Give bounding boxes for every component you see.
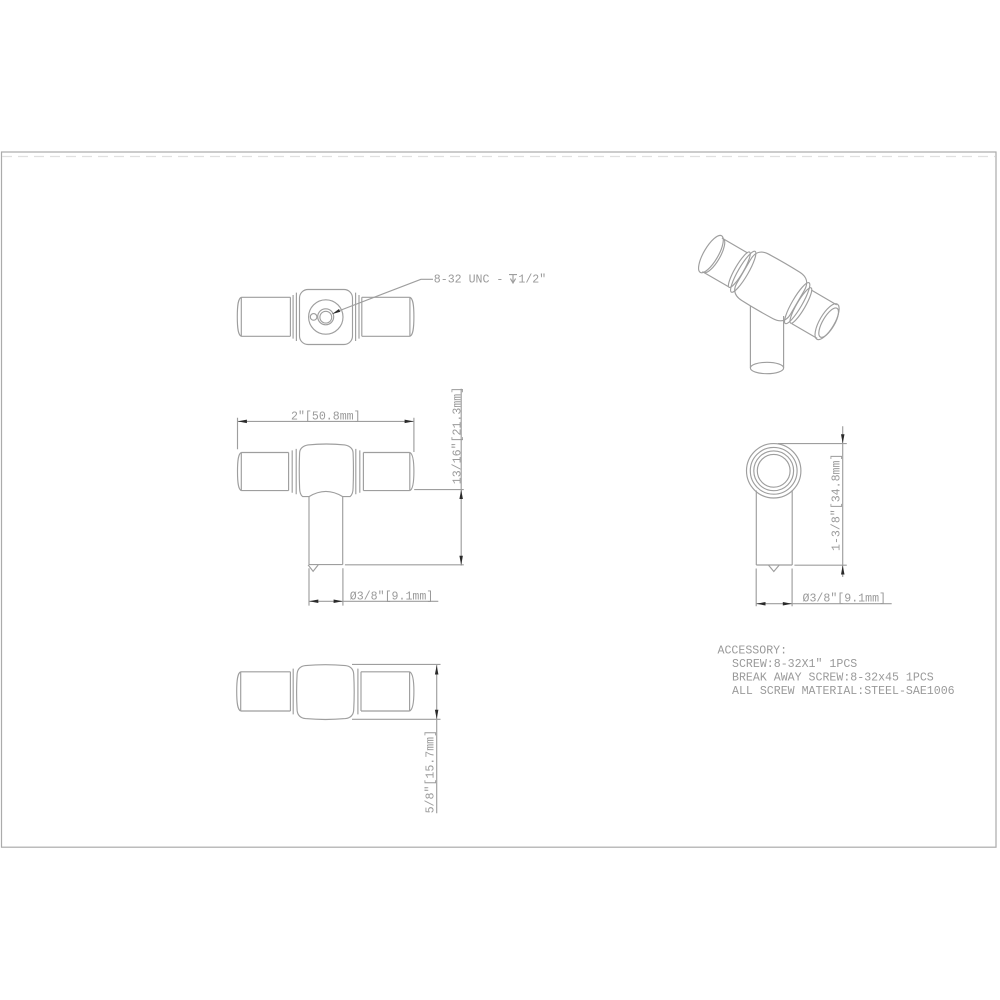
svg-text:1-3/8"[34.8mm]: 1-3/8"[34.8mm] bbox=[830, 454, 843, 551]
svg-text:5/8"[15.7mm]: 5/8"[15.7mm] bbox=[425, 730, 438, 814]
svg-text:BREAK AWAY SCREW:8-32x45 1PCS: BREAK AWAY SCREW:8-32x45 1PCS bbox=[732, 672, 934, 685]
svg-text:8-32 UNC -: 8-32 UNC - bbox=[434, 273, 504, 286]
svg-text:2"[50.8mm]: 2"[50.8mm] bbox=[291, 410, 361, 423]
svg-text:Ø3/8"[9.1mm]: Ø3/8"[9.1mm] bbox=[350, 590, 434, 603]
svg-text:Ø3/8"[9.1mm]: Ø3/8"[9.1mm] bbox=[803, 593, 887, 606]
svg-text:ALL SCREW MATERIAL:STEEL-SAE10: ALL SCREW MATERIAL:STEEL-SAE1006 bbox=[732, 685, 955, 698]
svg-text:SCREW:8-32X1" 1PCS: SCREW:8-32X1" 1PCS bbox=[732, 658, 857, 671]
svg-text:ACCESSORY:: ACCESSORY: bbox=[718, 644, 788, 657]
svg-text:13/16"[21.3mm]: 13/16"[21.3mm] bbox=[452, 387, 465, 484]
svg-text:1/2": 1/2" bbox=[518, 273, 546, 286]
